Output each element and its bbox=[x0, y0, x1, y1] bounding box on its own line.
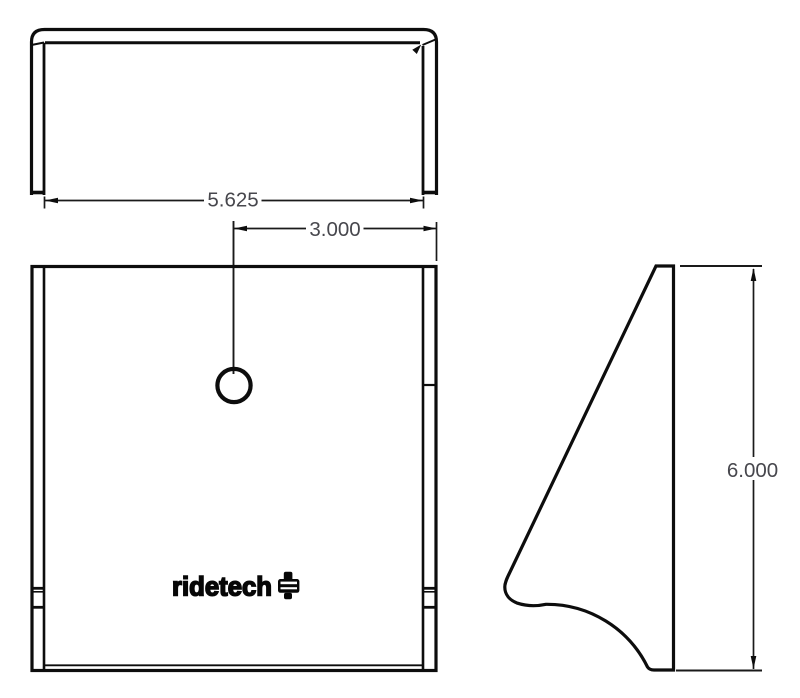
svg-text:5.625: 5.625 bbox=[207, 189, 258, 212]
svg-text:6.000: 6.000 bbox=[727, 459, 778, 482]
svg-text:3.000: 3.000 bbox=[309, 218, 360, 241]
svg-text:ridetech: ridetech bbox=[172, 572, 272, 602]
